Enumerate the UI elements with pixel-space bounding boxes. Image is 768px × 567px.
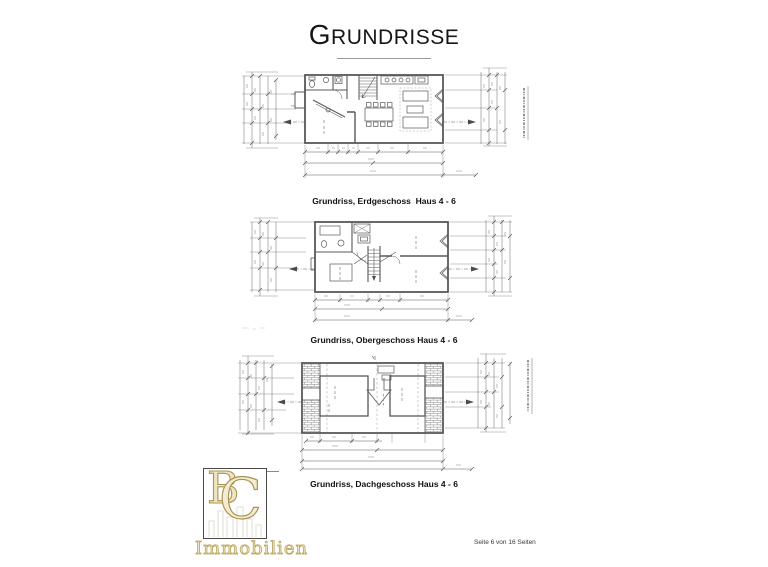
logo-box-tick (267, 471, 279, 472)
title-underline (337, 58, 431, 59)
page-title: GRUNDRISSE (0, 21, 768, 49)
logo-box: B C (203, 468, 267, 539)
dachgeschoss-floorplan-drawing (232, 350, 538, 480)
caption-obergeschoss: Grundriss, Obergeschoss Haus 4 - 6 (0, 335, 768, 345)
obergeschoss-floorplan-drawing (240, 212, 530, 336)
page-title-initial: G (309, 19, 331, 50)
document-page: GRUNDRISSE (0, 0, 768, 567)
page-number-label: Seite 6 von 16 Seiten (474, 539, 536, 546)
logo: B C Immobilien (195, 465, 305, 563)
page-title-rest: RUNDRISSE (331, 26, 459, 49)
caption-dachgeschoss: Grundriss, Dachgeschoss Haus 4 - 6 (0, 479, 768, 489)
erdgeschoss-floorplan-drawing (238, 60, 540, 195)
logo-name: Immobilien (195, 538, 308, 559)
caption-erdgeschoss: Grundriss, Erdgeschoss Haus 4 - 6 (0, 196, 768, 206)
logo-monogram-c: C (219, 472, 262, 528)
